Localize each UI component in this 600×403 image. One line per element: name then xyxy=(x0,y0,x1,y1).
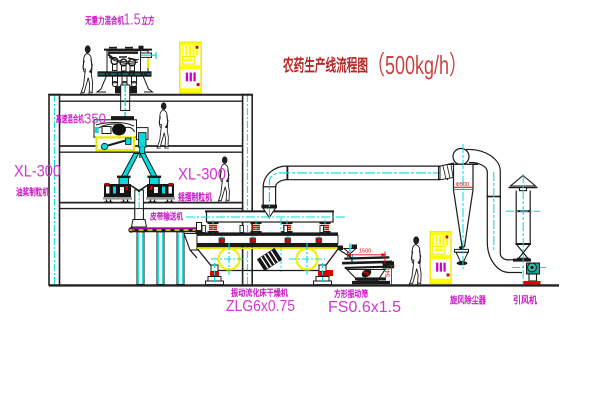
svg-text:350: 350 xyxy=(84,111,106,128)
svg-text:高速混合机: 高速混合机 xyxy=(56,114,84,126)
svg-text:立方: 立方 xyxy=(142,15,155,27)
svg-text:皮带输送机: 皮带输送机 xyxy=(149,211,183,222)
svg-text:油桨制粒机: 油桨制粒机 xyxy=(16,187,49,199)
svg-text:（500kg/h）: （500kg/h） xyxy=(367,50,467,80)
svg-text:摇摆制粒机: 摇摆制粒机 xyxy=(178,192,212,204)
svg-text:1.5: 1.5 xyxy=(124,12,141,29)
svg-text:农药生产线流程图: 农药生产线流程图 xyxy=(282,55,368,75)
svg-text:FS0.6x1.5: FS0.6x1.5 xyxy=(328,299,401,316)
svg-text:ZLG6x0.75: ZLG6x0.75 xyxy=(226,298,295,315)
svg-text:引风机: 引风机 xyxy=(513,295,537,307)
svg-text:旋风除尘器: 旋风除尘器 xyxy=(449,295,486,307)
svg-text:无重力混合机: 无重力混合机 xyxy=(84,15,124,27)
svg-text:方形振动筛: 方形振动筛 xyxy=(334,288,368,299)
svg-text:XL-300: XL-300 xyxy=(14,162,61,181)
svg-text:XL-300: XL-300 xyxy=(178,165,226,184)
svg-text:1500: 1500 xyxy=(359,249,371,255)
svg-text:振动流化床干燥机: 振动流化床干燥机 xyxy=(231,287,288,298)
svg-text:540: 540 xyxy=(386,266,392,277)
svg-text:Φ500: Φ500 xyxy=(456,182,470,188)
